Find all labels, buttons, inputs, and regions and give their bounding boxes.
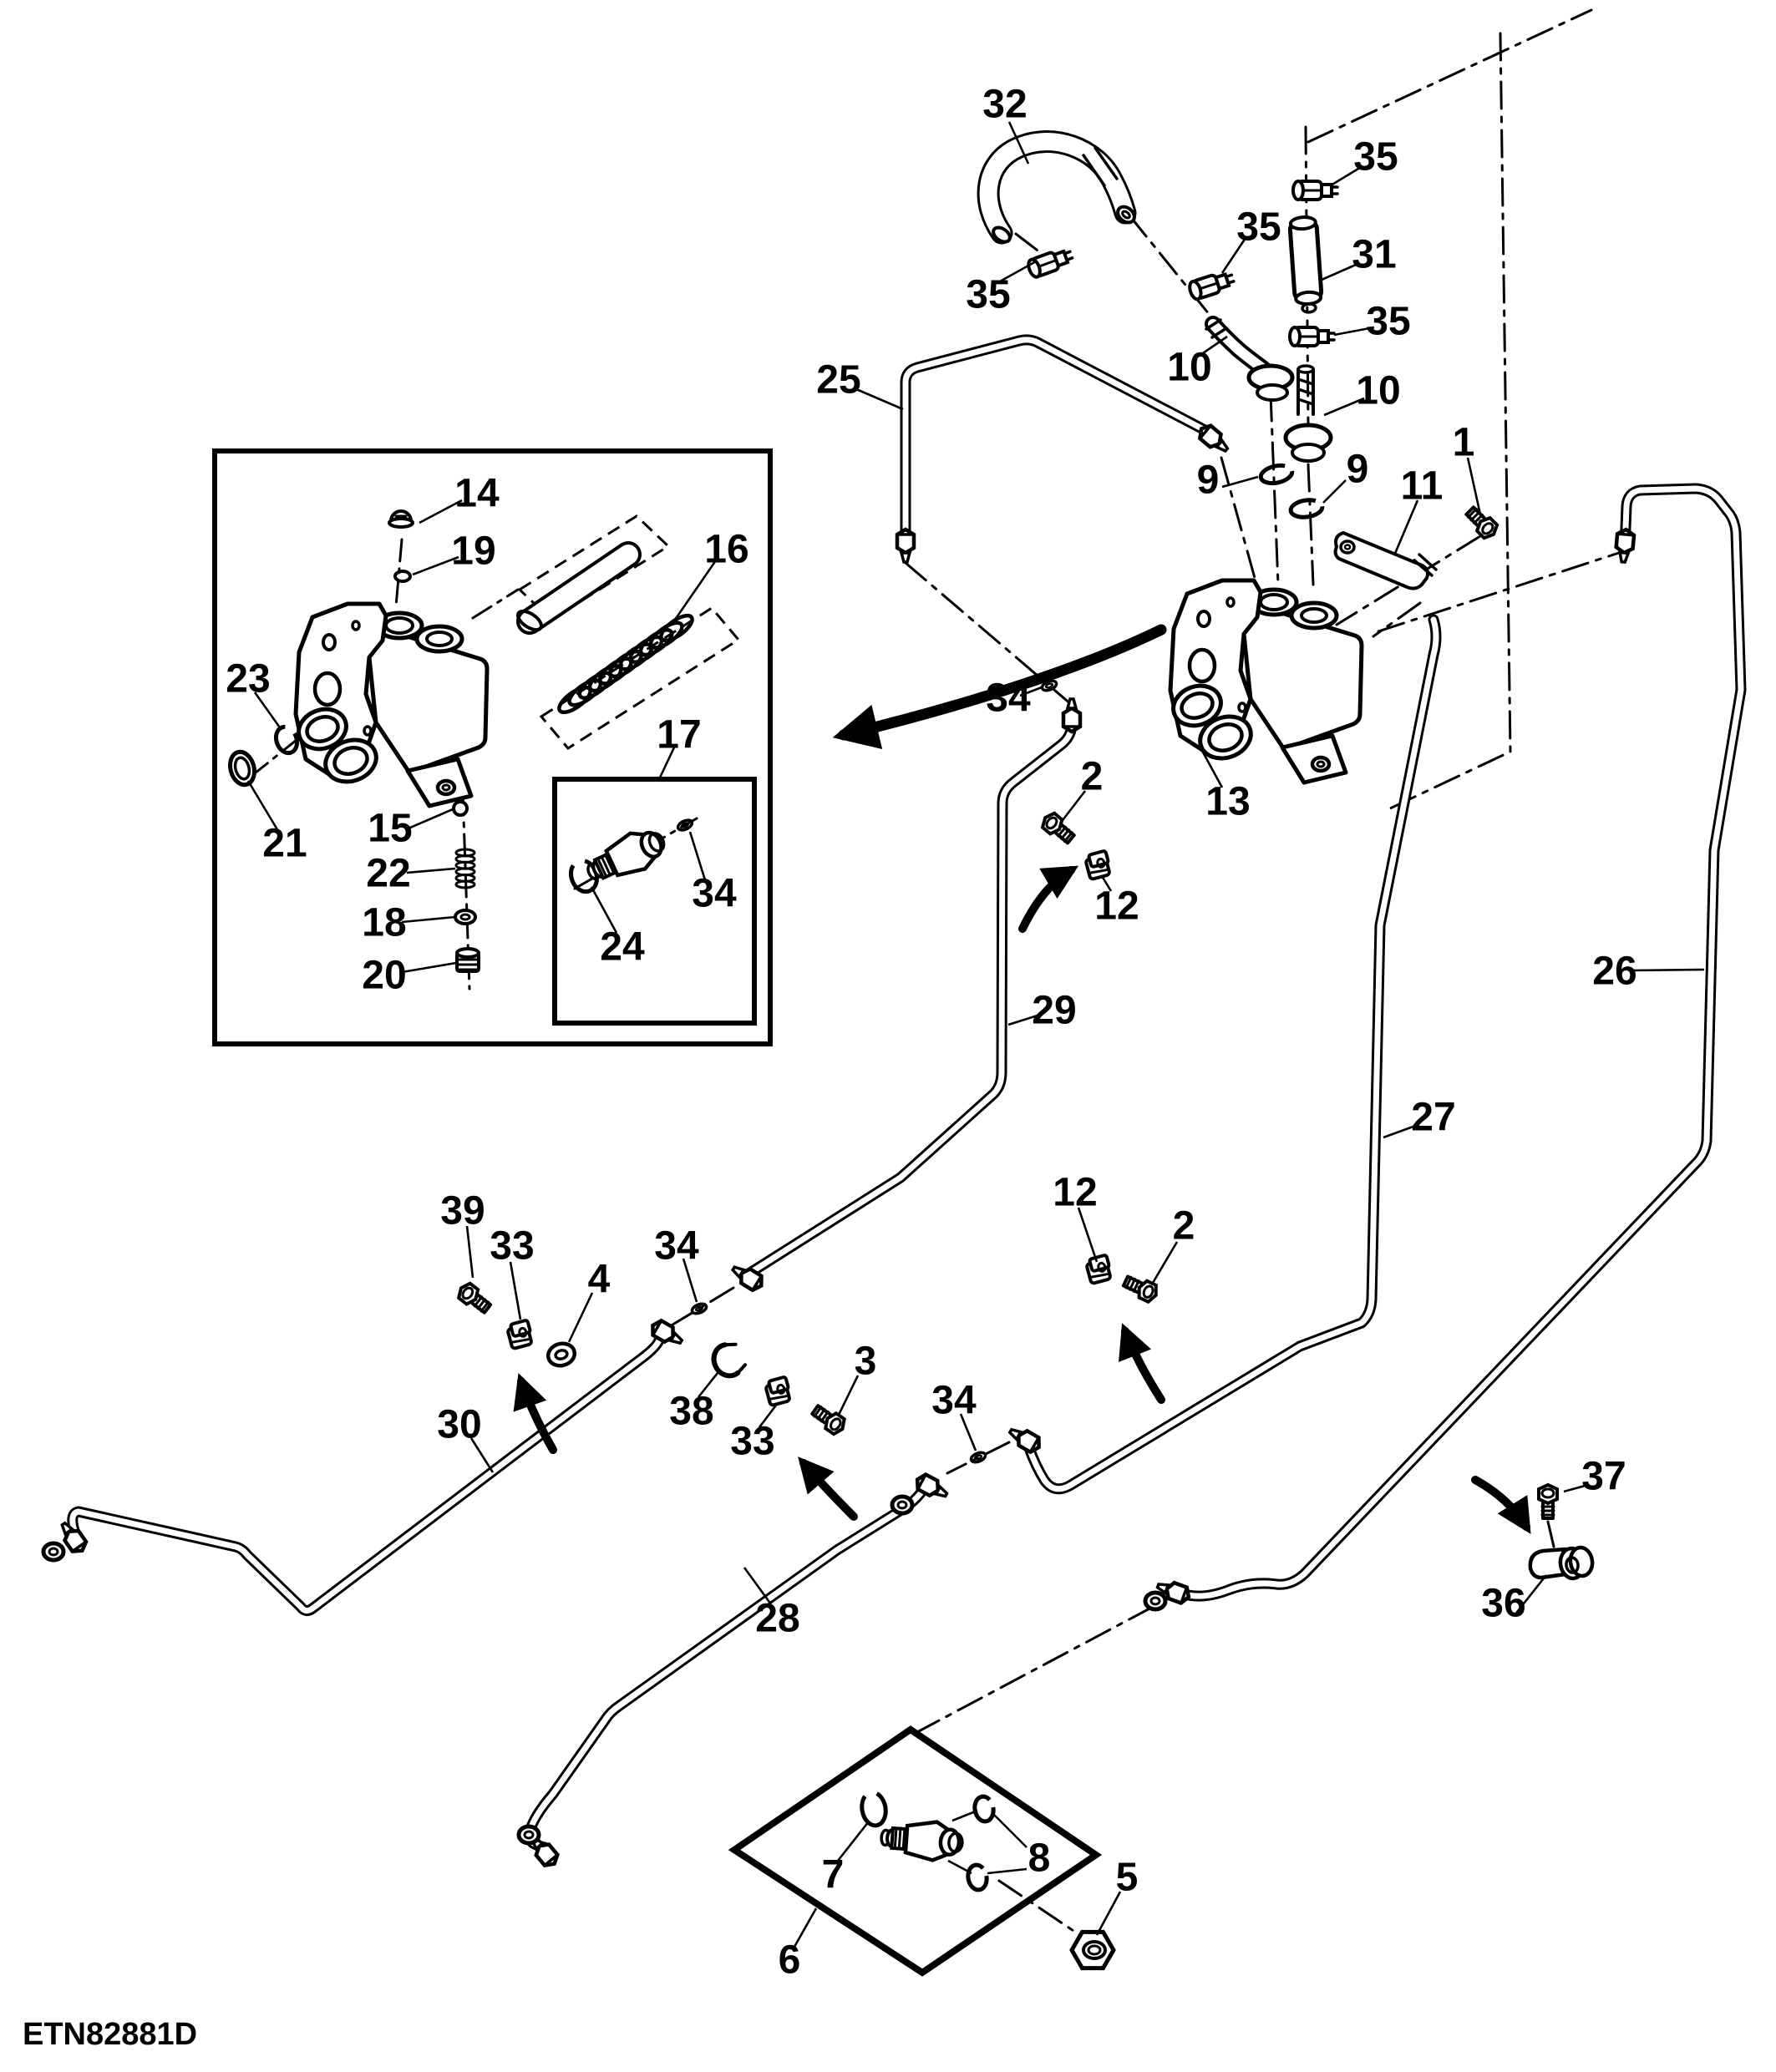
tube-29 (750, 723, 1072, 1273)
part-label-35d: 35 (1366, 300, 1410, 344)
tube-25-core (906, 340, 1210, 538)
washer-4-icon (545, 1340, 577, 1368)
leader-line (1630, 970, 1704, 970)
assemble-arrow-33b (804, 1463, 854, 1517)
oring-8b-icon (967, 1863, 989, 1891)
bolt-1-icon (1464, 504, 1500, 541)
leader-line (948, 1861, 972, 1873)
part-label-2b: 2 (1173, 1204, 1195, 1249)
part-label-10b: 10 (1356, 369, 1400, 413)
part-label-13: 13 (1205, 780, 1250, 824)
nut-tube25-right-icon (1196, 423, 1232, 456)
clamp-35b-icon (1188, 270, 1236, 301)
leader-line (856, 389, 903, 409)
bolt-39-icon (455, 1281, 493, 1316)
part-label-15: 15 (368, 807, 412, 851)
part-label-19: 19 (451, 529, 495, 574)
part-label-12a: 12 (1094, 884, 1139, 929)
tube-25 (906, 340, 1210, 538)
assemble-arrow-12a (1022, 870, 1071, 929)
eyelet-tube30-icon (43, 1543, 63, 1560)
bolt-37-icon (1539, 1485, 1557, 1518)
assemble-arrow-12b (1125, 1331, 1161, 1400)
labels: 1223456789910101112121314151617181920212… (23, 83, 1637, 2053)
part-label-37: 37 (1581, 1455, 1626, 1499)
bolt-2a-icon (1039, 811, 1077, 847)
ball-15-icon (454, 802, 467, 815)
part-label-23: 23 (226, 657, 270, 702)
clamp-35d-icon (1290, 327, 1334, 346)
parts-diagram: 1223456789910101112121314151617181920212… (0, 0, 1776, 2072)
tube-28 (529, 1493, 921, 1847)
part-label-35b: 35 (1236, 205, 1281, 250)
assemble-arrow-36 (1475, 1480, 1526, 1527)
clip-33b-icon (764, 1376, 792, 1406)
part-label-26: 26 (1592, 950, 1636, 994)
part-label-4: 4 (588, 1258, 611, 1302)
drawing-code: ETN82881D (23, 2017, 197, 2052)
center-line (947, 1442, 1009, 1473)
tube-30-core (73, 1338, 660, 1611)
part-label-10a: 10 (1167, 346, 1211, 390)
tube-29-core (750, 723, 1072, 1273)
bushing-38-icon (709, 1340, 748, 1380)
part-label-12b: 12 (1053, 1171, 1097, 1215)
center-line (917, 1607, 1153, 1732)
center-line (1221, 458, 1255, 578)
link-11-icon (1336, 533, 1436, 589)
part-label-9a: 9 (1197, 458, 1220, 503)
nut-tube25-left-icon (897, 529, 914, 562)
center-line (1548, 1522, 1554, 1547)
part-label-14: 14 (454, 472, 500, 516)
part-label-39: 39 (440, 1189, 485, 1234)
spring-22-icon (456, 849, 474, 888)
valve-13 (1168, 580, 1362, 783)
part-label-33a: 33 (490, 1224, 534, 1269)
part-label-9b: 9 (1347, 448, 1369, 492)
plug-20-icon (457, 949, 479, 971)
tube-31-icon (1289, 216, 1322, 313)
leader-line (1323, 480, 1346, 503)
part-label-21: 21 (262, 822, 307, 866)
part-label-38: 38 (669, 1390, 713, 1434)
center-line (1271, 394, 1278, 585)
part-label-36: 36 (1481, 1582, 1525, 1626)
nut-tube27-bottom-icon (1007, 1424, 1043, 1455)
part-label-31: 31 (1352, 233, 1396, 277)
cap-nut-5-icon (1072, 1932, 1114, 1968)
center-line (1129, 215, 1213, 319)
center-line (1390, 33, 1510, 808)
center-line (1016, 234, 1044, 256)
center-line (1308, 10, 1591, 142)
clip-12a-icon (1084, 850, 1112, 879)
part-label-11: 11 (1401, 464, 1444, 509)
leader-line (952, 1811, 977, 1821)
diagram-page: 1223456789910101112121314151617181920212… (0, 0, 1776, 2072)
leader-line (992, 1813, 1027, 1847)
part-label-25: 25 (816, 358, 860, 403)
oring-8a-icon (973, 1795, 996, 1822)
part-label-34c: 34 (931, 1379, 977, 1423)
part-label-5: 5 (1116, 1856, 1139, 1900)
part-label-16: 16 (704, 528, 748, 572)
part-label-6: 6 (779, 1938, 801, 1983)
switch-6-icon (880, 1818, 964, 1862)
eyelet-tube28l-icon (519, 1826, 539, 1843)
part-label-1: 1 (1453, 421, 1475, 465)
clamp-35c-icon (1293, 181, 1337, 200)
part-label-33b: 33 (730, 1420, 774, 1464)
part-label-34b: 34 (654, 1224, 699, 1269)
leader-line (1394, 500, 1418, 555)
part-label-35c: 35 (1353, 135, 1398, 180)
eyelet-tube28r-icon (892, 1497, 912, 1513)
washer-9a-icon (1259, 463, 1293, 485)
part-label-20: 20 (362, 954, 406, 998)
part-label-18: 18 (362, 901, 406, 945)
clip-12b-icon (1085, 1254, 1113, 1284)
part-label-7: 7 (822, 1853, 845, 1897)
center-line (1308, 464, 1313, 585)
eyelet-tube26-icon (1145, 1593, 1165, 1609)
tube-28-core (529, 1493, 921, 1847)
clamp-36-icon (1530, 1546, 1594, 1579)
washer-9b-icon (1290, 498, 1323, 519)
part-label-34i: 34 (692, 872, 737, 916)
part-label-22: 22 (366, 852, 410, 896)
part-label-32: 32 (982, 83, 1027, 127)
clip-33a-icon (506, 1320, 534, 1349)
leader-line (987, 1869, 1027, 1873)
leader-line (1078, 1208, 1097, 1262)
part-label-28: 28 (755, 1597, 799, 1641)
bolt-2b-icon (1122, 1273, 1160, 1304)
part-label-24: 24 (600, 925, 645, 970)
part-label-29: 29 (1032, 989, 1076, 1033)
part-label-35a: 35 (966, 273, 1010, 317)
part-label-8: 8 (1028, 1836, 1051, 1881)
fitting-10a-icon (1206, 320, 1292, 400)
leader-line (467, 1226, 473, 1278)
washer-18-icon (455, 910, 475, 924)
plug-14-icon (389, 511, 413, 527)
part-label-2a: 2 (1081, 755, 1104, 799)
leader-line (1322, 265, 1356, 280)
part-label-17: 17 (657, 713, 701, 757)
part-label-27: 27 (1411, 1096, 1455, 1140)
nut-tube29-top-icon (1063, 699, 1080, 732)
nut-tube26-top-icon (1615, 529, 1634, 563)
part-label-3: 3 (855, 1340, 877, 1384)
part-label-34a: 34 (986, 676, 1031, 721)
leader-line (510, 1262, 520, 1320)
part-label-30: 30 (437, 1403, 481, 1447)
snapring-7-icon (860, 1791, 889, 1827)
